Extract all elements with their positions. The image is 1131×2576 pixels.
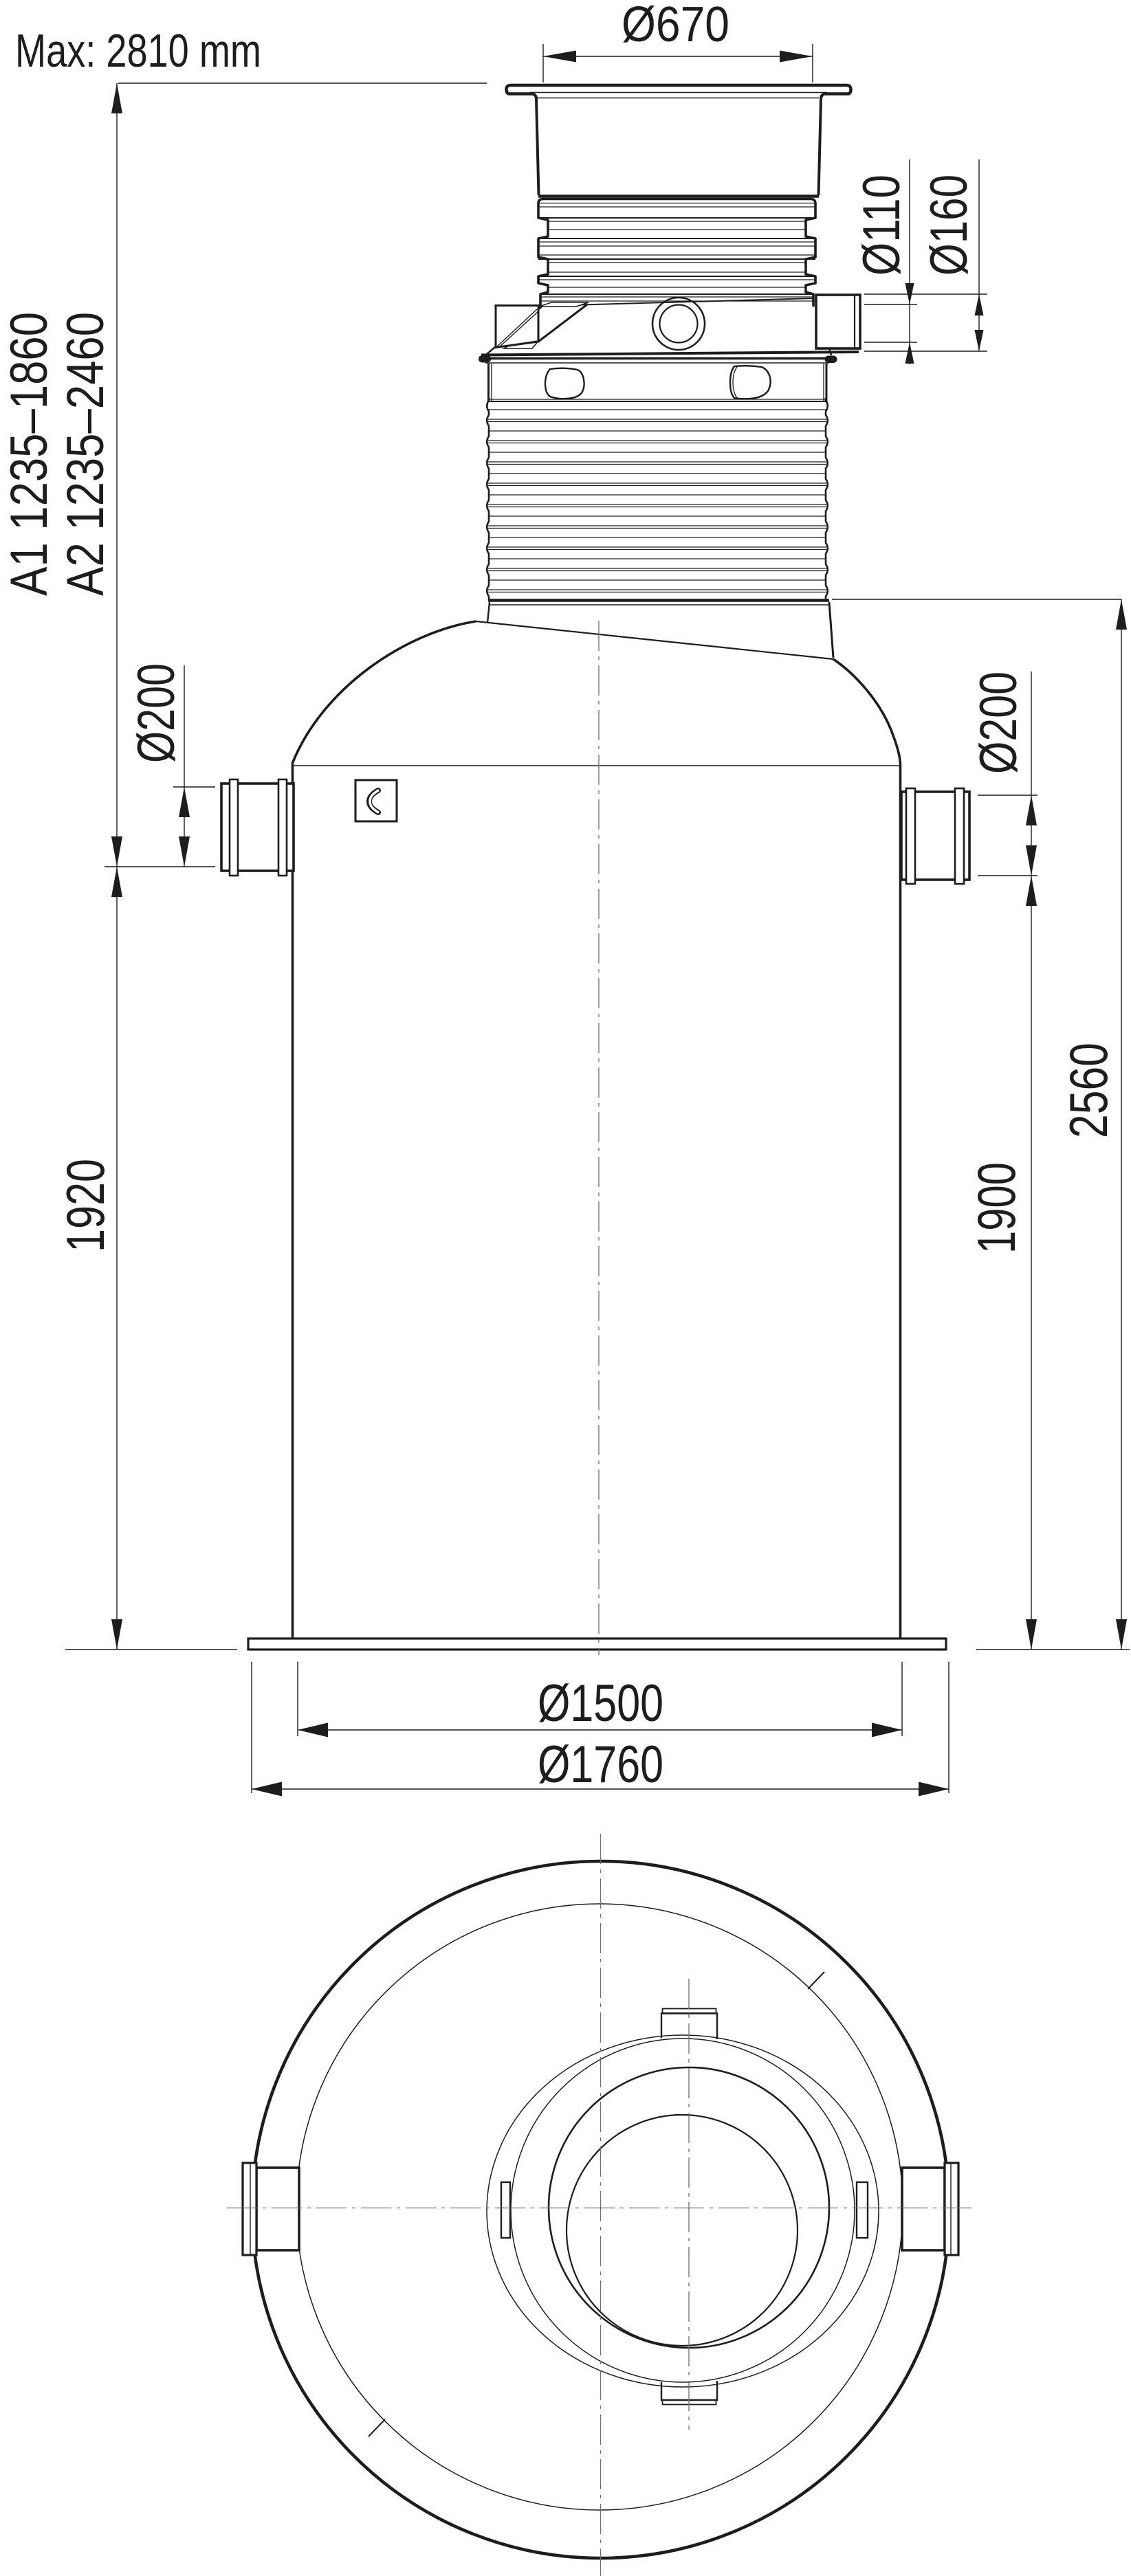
svg-text:Ø200: Ø200 [969,671,1028,774]
svg-text:Ø200: Ø200 [127,663,186,763]
svg-text:A1 1235–1860: A1 1235–1860 [0,312,58,596]
svg-text:2560: 2560 [1058,1043,1119,1138]
svg-text:Ø160: Ø160 [920,175,978,276]
svg-text:1900: 1900 [966,1162,1026,1254]
svg-text:1920: 1920 [55,1159,116,1252]
svg-text:Ø1500: Ø1500 [538,1674,663,1733]
svg-text:Ø670: Ø670 [622,0,729,52]
svg-text:Max: 2810 mm: Max: 2810 mm [15,25,261,77]
svg-text:A2 1235–2460: A2 1235–2460 [56,312,115,596]
svg-text:Ø1760: Ø1760 [538,1735,663,1794]
svg-text:Ø110: Ø110 [853,175,911,276]
